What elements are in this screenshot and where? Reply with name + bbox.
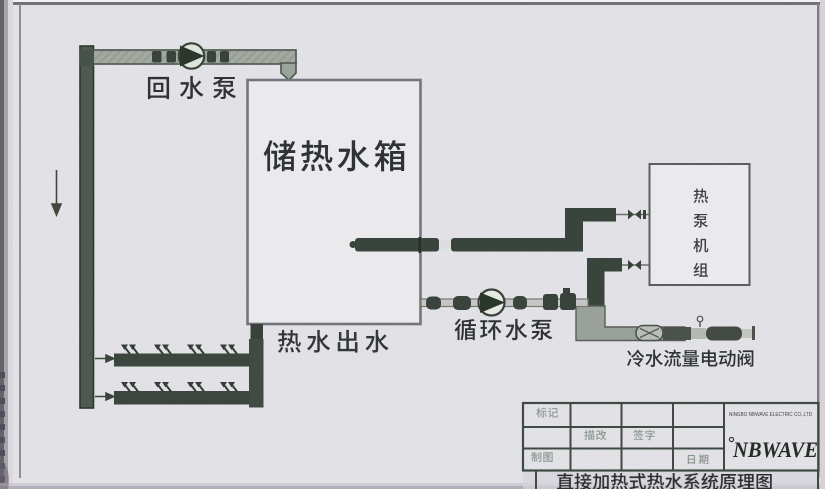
svg-text:NINGBO NBWAVE ELECTRIC CO.,LTD: NINGBO NBWAVE ELECTRIC CO.,LTD [729, 412, 812, 418]
svg-text:NBWAVE: NBWAVE [732, 437, 818, 462]
